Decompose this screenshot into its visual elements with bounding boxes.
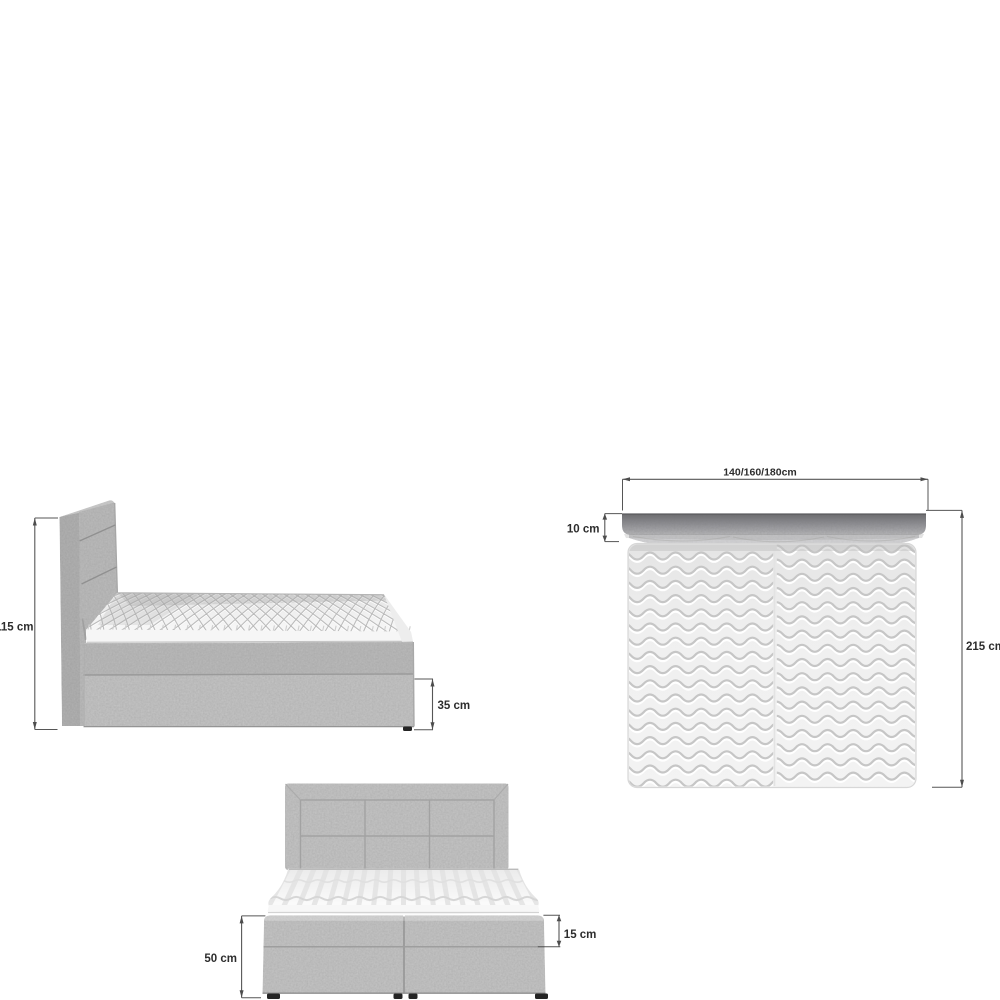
svg-text:10 cm: 10 cm	[567, 523, 600, 535]
svg-text:215 cm: 215 cm	[966, 641, 1000, 653]
svg-text:50 cm: 50 cm	[204, 953, 237, 965]
svg-text:115 cm: 115 cm	[0, 622, 34, 634]
svg-text:35 cm: 35 cm	[438, 700, 471, 712]
svg-text:140/160/180cm: 140/160/180cm	[723, 467, 797, 479]
svg-text:15 cm: 15 cm	[564, 929, 597, 941]
